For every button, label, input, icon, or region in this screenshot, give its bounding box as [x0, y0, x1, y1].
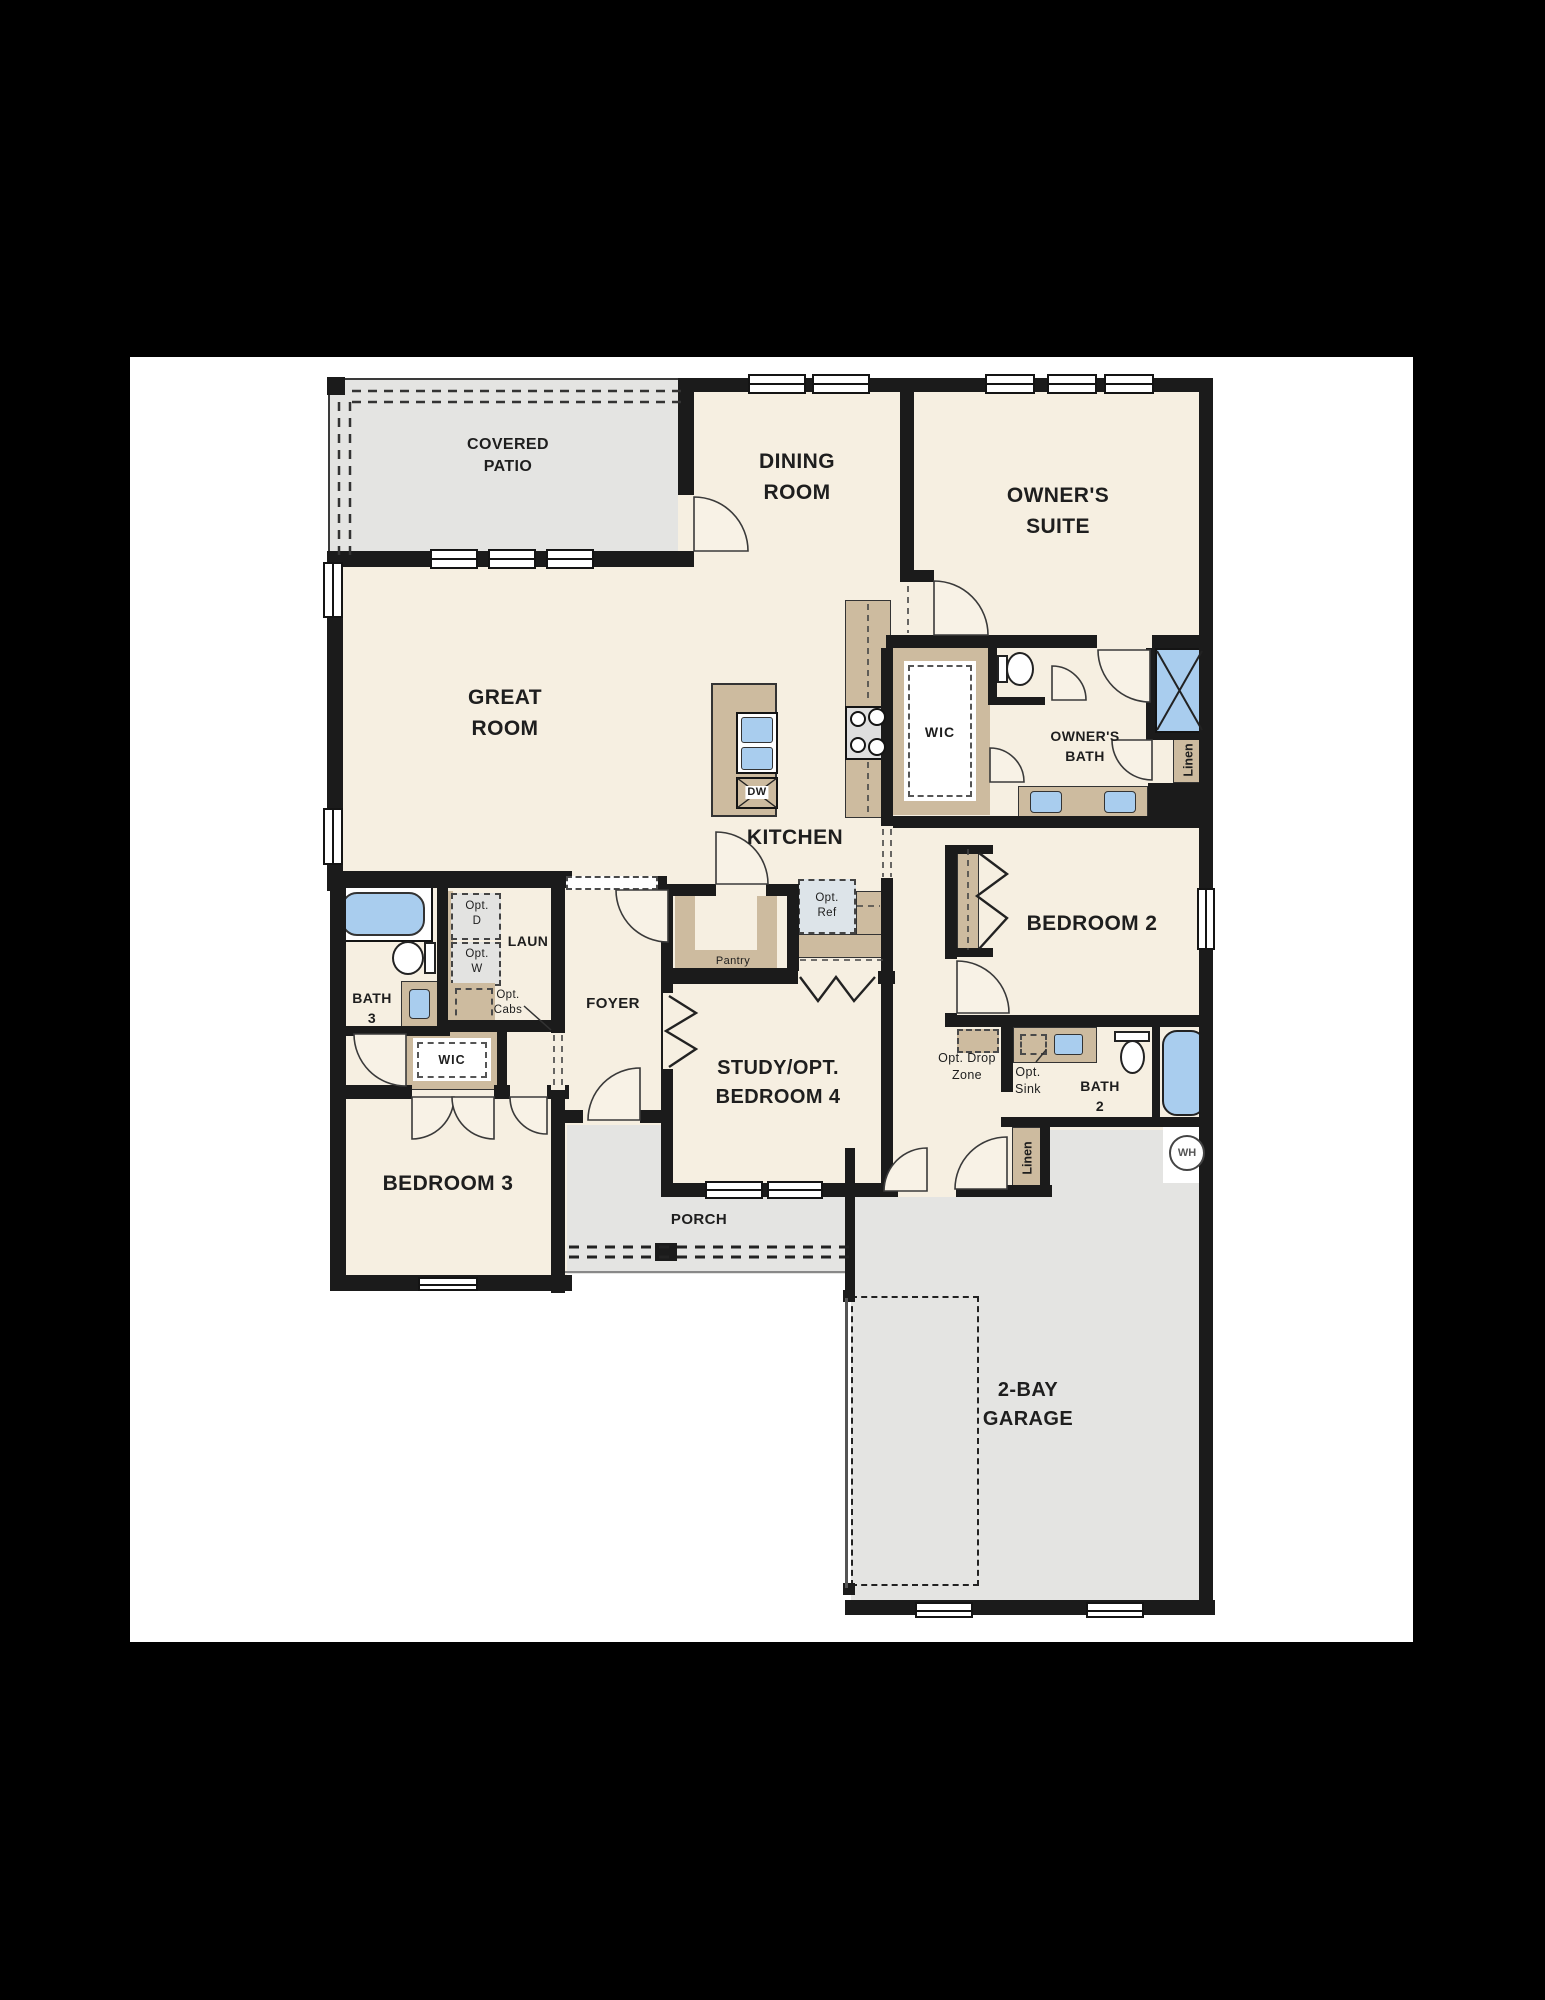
patio-corner-post: [327, 377, 345, 395]
window: [705, 1181, 763, 1199]
bath3-tub: [341, 892, 425, 936]
label-line: GARAGE: [983, 1405, 1073, 1434]
label-linen-hall: Linen: [1020, 1141, 1037, 1174]
wall-bedroom3-top: [330, 1085, 412, 1099]
window: [418, 1277, 478, 1291]
opt-sink-box: [1020, 1034, 1047, 1055]
window: [812, 374, 870, 394]
door-opening: [678, 495, 694, 551]
floor-plan-canvas: WH: [0, 0, 1545, 2000]
wall-suite-bottom: [886, 635, 1213, 648]
cased-opening: [663, 993, 675, 1069]
room-label-owners-bath: OWNER'SBATH: [1050, 726, 1119, 766]
window: [915, 1602, 973, 1618]
label-line: Pantry: [716, 955, 750, 968]
label-line: Linen: [1021, 1141, 1035, 1174]
label-line: BATH: [1050, 746, 1119, 766]
label-opt-sink: Opt.Sink: [1015, 1064, 1041, 1098]
wall-bedroom2-bottom: [945, 1015, 1213, 1027]
label-line: 2: [1080, 1096, 1119, 1116]
label-line: Cabs: [494, 1003, 522, 1018]
window: [1047, 374, 1097, 394]
label-line: Opt. Drop: [938, 1050, 996, 1067]
room-label-bedroom3: BEDROOM 3: [383, 1168, 514, 1199]
wall-linen-right: [1040, 1125, 1050, 1193]
room-label-bedroom2: BEDROOM 2: [1027, 908, 1158, 939]
label-line: BEDROOM 4: [716, 1083, 841, 1112]
window: [748, 374, 806, 394]
room-label-owners-wic: WIC: [925, 722, 955, 742]
label-line: KITCHEN: [747, 822, 843, 853]
toilet-bowl: [1006, 652, 1034, 686]
label-line: Ref: [815, 906, 838, 921]
wall-dining-suite: [900, 392, 914, 574]
cased-opening: [881, 826, 893, 878]
water-heater-label: WH: [1178, 1147, 1196, 1160]
door-opening: [898, 1185, 956, 1197]
wall-pantry-right: [787, 884, 799, 980]
label-line: OWNER'S: [1050, 726, 1119, 746]
label-opt-cabs: Opt.Cabs: [494, 988, 522, 1018]
water-heater: WH: [1169, 1135, 1205, 1171]
label-line: OWNER'S: [1007, 480, 1109, 511]
shower: [1155, 648, 1205, 733]
wall-segment: [1152, 1027, 1160, 1119]
bath2-sink: [1054, 1034, 1083, 1055]
wall-bath3-laundry: [437, 888, 448, 1033]
kitchen-sink-basin: [741, 717, 773, 743]
label-line: DW: [747, 786, 766, 799]
label-line: STUDY/OPT.: [716, 1054, 841, 1083]
wall-bath-bottom: [886, 816, 1213, 828]
wall-bedroom3-top: [494, 1085, 510, 1099]
wall-shower-left: [1146, 648, 1155, 740]
wall-exterior-right: [1199, 378, 1213, 1615]
room-label-dining: DININGROOM: [759, 446, 835, 508]
label-line: BATH: [352, 988, 391, 1008]
toilet-bowl: [1120, 1040, 1145, 1074]
cased-opening: [551, 1033, 565, 1090]
wall-kitchen-wic: [881, 648, 893, 826]
room-label-bath3: BATH3: [352, 988, 391, 1028]
label-opt-drop-zone: Opt. DropZone: [938, 1050, 996, 1084]
room-label-bath2: BATH2: [1080, 1076, 1119, 1116]
pantry-shelf: [757, 894, 777, 952]
label-line: Opt.: [1015, 1064, 1041, 1081]
porch-post: [655, 1243, 677, 1261]
label-line: D: [465, 914, 488, 929]
window: [1104, 374, 1154, 394]
wall-study-right: [881, 878, 893, 1197]
label-pantry: Pantry: [716, 955, 750, 968]
label-line: FOYER: [586, 993, 640, 1014]
label-line: LAUN: [508, 931, 548, 951]
wall-closet-stub: [957, 845, 993, 854]
label-line: COVERED: [467, 434, 549, 456]
label-line: 2-BAY: [983, 1376, 1073, 1405]
vanity-sink: [1030, 791, 1062, 813]
label-line: ROOM: [468, 713, 542, 744]
window: [323, 562, 343, 618]
label-line: PORCH: [671, 1209, 727, 1230]
label-line: Opt.: [465, 947, 488, 962]
room-label-kitchen: KITCHEN: [747, 822, 843, 853]
label-line: BATH: [1080, 1076, 1119, 1096]
label-line: Zone: [938, 1067, 996, 1084]
label-line: BEDROOM 3: [383, 1168, 514, 1199]
label-line: Linen: [1182, 743, 1196, 776]
wall-segment: [900, 570, 934, 582]
room-label-foyer: FOYER: [586, 993, 640, 1014]
label-opt-dryer: Opt.D: [465, 899, 488, 929]
garage-opt-storage-outline: [851, 1296, 979, 1586]
bath3-sink: [409, 989, 430, 1019]
window: [488, 549, 536, 569]
front-door-opening: [583, 1110, 640, 1123]
wall-pantry-left: [661, 884, 673, 980]
label-line: Opt.: [494, 988, 522, 1003]
label-line: Sink: [1015, 1081, 1041, 1098]
label-line: DINING: [759, 446, 835, 477]
wall-garage-left: [845, 1148, 855, 1298]
room-label-great-room: GREATROOM: [468, 682, 542, 744]
garage-edge: [845, 1298, 848, 1588]
wall-toilet-room: [988, 697, 1045, 705]
room-label-bed3-wic: WIC: [438, 1052, 465, 1069]
window: [546, 549, 594, 569]
label-line: ROOM: [759, 477, 835, 508]
label-line: WIC: [925, 722, 955, 742]
room-label-owners-suite: OWNER'SSUITE: [1007, 480, 1109, 542]
label-line: WIC: [438, 1052, 465, 1069]
label-line: Opt.: [815, 891, 838, 906]
cased-opening: [902, 584, 914, 635]
wall-pantry-bottom: [661, 968, 799, 980]
room-label-study: STUDY/OPT.BEDROOM 4: [716, 1054, 841, 1112]
cased-opening: [798, 971, 878, 984]
toilet-bowl: [392, 941, 424, 975]
porch-edge: [565, 1271, 853, 1273]
flush-opening: [566, 876, 658, 890]
label-line: GREAT: [468, 682, 542, 713]
room-label-porch: PORCH: [671, 1209, 727, 1230]
kitchen-sink-basin: [741, 747, 773, 770]
label-line: BEDROOM 2: [1027, 908, 1158, 939]
window: [767, 1181, 823, 1199]
room-label-garage: 2-BAYGARAGE: [983, 1376, 1073, 1434]
label-line: Opt.: [465, 899, 488, 914]
bedroom2-closet: [957, 845, 979, 955]
label-opt-ref: Opt.Ref: [815, 891, 838, 921]
door-opening: [716, 884, 766, 896]
label-linen-bath: Linen: [1181, 743, 1198, 776]
window: [430, 549, 478, 569]
wall-garage-bottom: [845, 1600, 1215, 1615]
window: [323, 808, 343, 865]
label-line: W: [465, 962, 488, 977]
kitchen-counter: [798, 934, 890, 958]
wall-exterior-left-lower: [330, 873, 346, 1291]
door-opening: [1097, 635, 1152, 648]
wall-bath2-bottom: [1001, 1117, 1213, 1127]
window: [1197, 888, 1215, 950]
window: [1086, 1602, 1144, 1618]
label-line: PATIO: [467, 456, 549, 478]
wall-bath3-top: [330, 871, 572, 888]
window: [985, 374, 1035, 394]
label-line: SUITE: [1007, 511, 1109, 542]
wall-closet-stub: [957, 948, 993, 957]
door-opening: [945, 959, 957, 1013]
label-line: 3: [352, 1008, 391, 1028]
room-label-covered-patio: COVEREDPATIO: [467, 434, 549, 478]
wall-linen-top: [1146, 733, 1208, 740]
toilet-tank: [424, 942, 436, 974]
label-opt-washer: Opt.W: [465, 947, 488, 977]
label-dishwasher: DW: [745, 786, 768, 799]
room-label-laundry: LAUN: [508, 931, 548, 951]
door-opening: [1001, 1092, 1013, 1117]
vanity-sink: [1104, 791, 1136, 813]
